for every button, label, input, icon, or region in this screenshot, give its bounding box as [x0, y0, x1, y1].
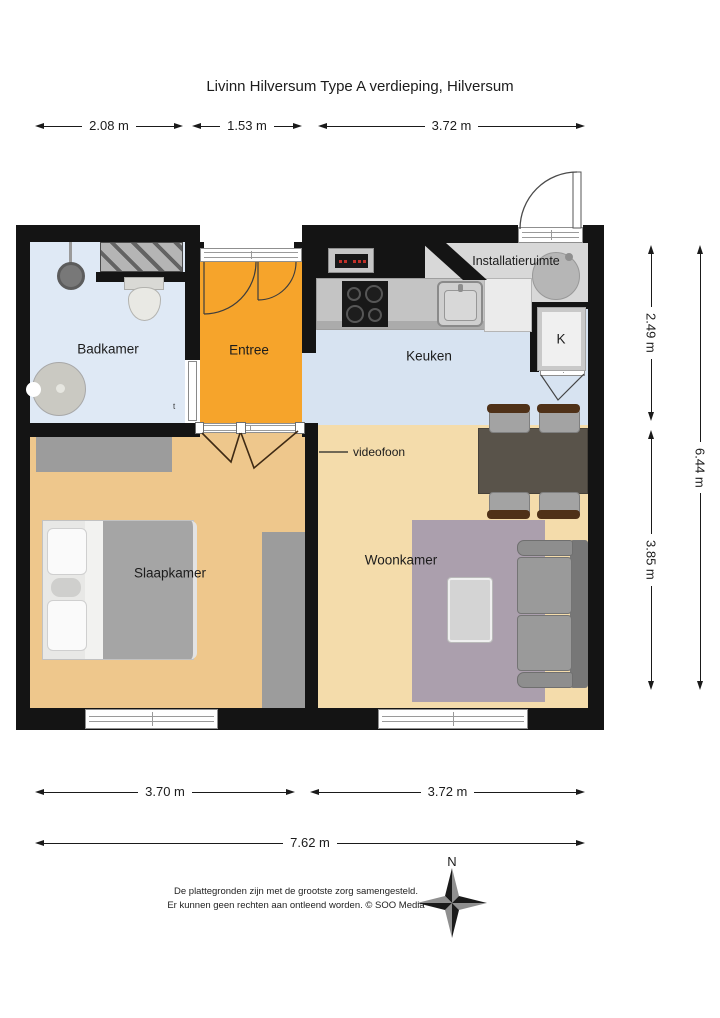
disclaimer-line2: Er kunnen geen rechten aan ontleend word… — [150, 899, 442, 913]
bedroom-door-swing — [241, 431, 298, 468]
entrance-door-leaf — [573, 172, 581, 228]
room-label-installatieruimte: Installatieruimte — [472, 254, 560, 268]
entree-door-swing-arc — [258, 262, 296, 300]
room-label-badkamer: Badkamer — [77, 342, 139, 357]
disclaimer: De plattegronden zijn met de grootste zo… — [150, 885, 442, 913]
room-label-keuken: Keuken — [406, 349, 452, 364]
disclaimer-line1: De plattegronden zijn met de grootste zo… — [150, 885, 442, 899]
thermostat-marker: t — [173, 402, 175, 411]
bedroom-door-swing — [202, 433, 240, 462]
kast-label: K — [556, 332, 565, 347]
entrance-door-swing-arc — [520, 172, 577, 229]
room-label-slaapkamer: Slaapkamer — [134, 566, 206, 581]
entree-door-swing-arc — [204, 262, 256, 314]
room-label-woonkamer: Woonkamer — [365, 553, 438, 568]
room-label-entree: Entree — [229, 343, 269, 358]
compass-north-label: N — [440, 854, 464, 869]
kast-door-swing — [541, 374, 584, 400]
floorplan-page: Livinn Hilversum Type A verdieping, Hilv… — [0, 0, 720, 1018]
plan-overlay — [0, 0, 720, 1018]
videofoon-label: videofoon — [353, 445, 405, 459]
